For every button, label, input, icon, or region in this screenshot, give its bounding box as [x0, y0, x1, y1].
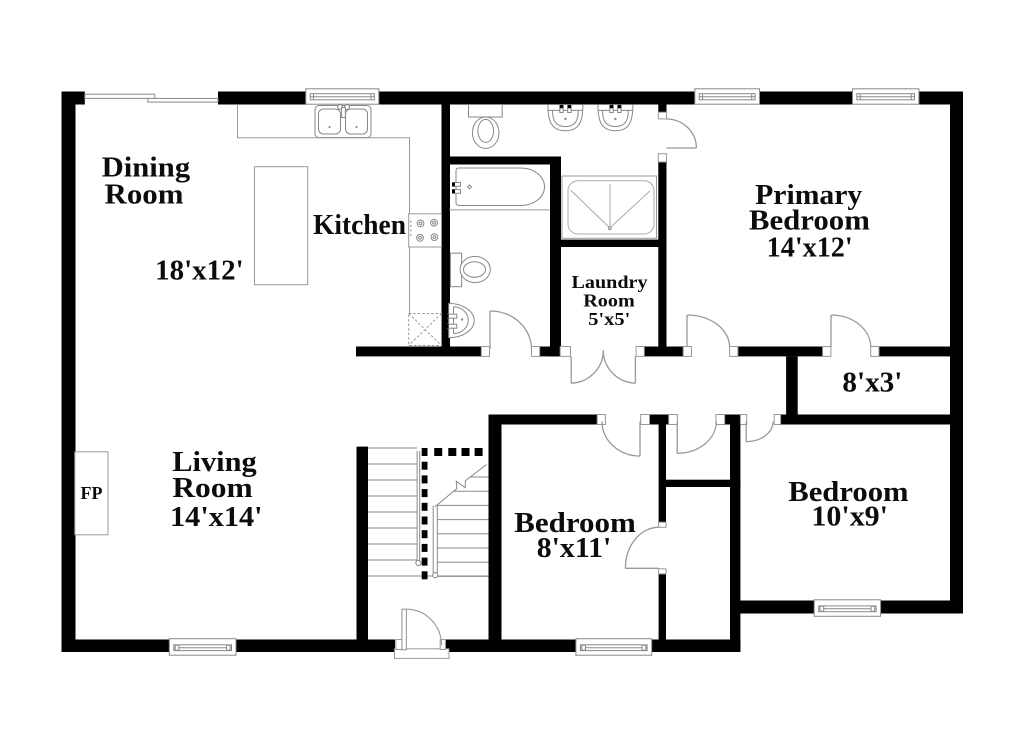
svg-text:Kitchen: Kitchen: [313, 210, 406, 241]
svg-text:8'x3': 8'x3': [842, 368, 902, 399]
svg-text:Room: Room: [105, 180, 184, 211]
svg-text:14'x12': 14'x12': [767, 233, 853, 264]
svg-text:FP: FP: [81, 483, 103, 503]
svg-text:10'x9': 10'x9': [811, 502, 888, 533]
svg-text:Room: Room: [172, 473, 252, 504]
svg-text:8'x11': 8'x11': [537, 533, 612, 564]
svg-text:18'x12': 18'x12': [155, 256, 244, 287]
svg-text:Laundry: Laundry: [572, 272, 648, 292]
svg-text:14'x14': 14'x14': [170, 502, 263, 533]
svg-text:Room: Room: [583, 291, 635, 311]
svg-text:5'x5': 5'x5': [588, 309, 630, 329]
